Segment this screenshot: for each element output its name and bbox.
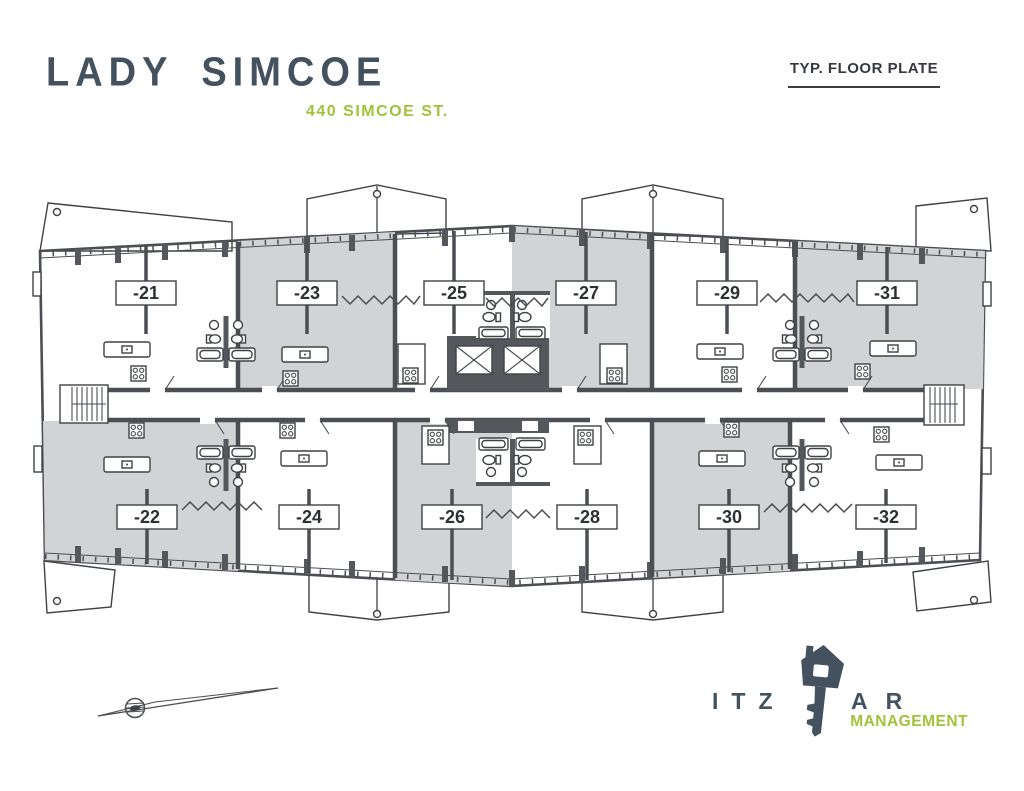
page: { "header": { "title": "LADY SIMCOE", "a… [0, 0, 1024, 791]
unit-fill-23 [238, 232, 395, 389]
north-arrow-icon [98, 688, 278, 718]
logo-wordmark-left: ITZ [712, 688, 786, 715]
stove-icon [403, 368, 418, 383]
svg-text:-22: -22 [134, 507, 160, 527]
unit-fill-30 [652, 421, 790, 578]
stove-icon [724, 422, 739, 437]
stove-icon [607, 368, 622, 383]
elevator-x-icon [456, 346, 492, 374]
svg-text:-31: -31 [874, 283, 900, 303]
stove-icon [131, 366, 146, 381]
unit-label-22: -22 [117, 505, 177, 529]
svg-text:-32: -32 [873, 507, 899, 527]
unit-label-27: -27 [556, 281, 616, 305]
unit-label-21: -21 [116, 281, 176, 305]
stove-icon [283, 371, 298, 386]
logo-wordmark-right: AR [851, 688, 920, 715]
unit-label-24: -24 [279, 505, 339, 529]
balcony-bottom-left [44, 561, 115, 613]
unit-label-29: -29 [697, 281, 757, 305]
svg-text:-28: -28 [574, 507, 600, 527]
stairwell-left [60, 385, 108, 423]
stove-icon [874, 427, 889, 442]
svg-text:-26: -26 [439, 507, 465, 527]
svg-text:-24: -24 [296, 507, 322, 527]
elevator-x-icon [504, 346, 540, 374]
floor-plan-drawing: -21 -23 -25 -27 -29 -31 -22 -24 -26 -28 … [0, 0, 1024, 791]
svg-text:-30: -30 [716, 507, 742, 527]
unit-fill-31 [795, 241, 985, 389]
stove-icon [280, 423, 295, 438]
unit-label-26: -26 [422, 505, 482, 529]
stairwell-right [924, 385, 964, 425]
balcony-top-right [916, 198, 991, 251]
stove-icon [129, 423, 144, 438]
svg-text:-23: -23 [294, 283, 320, 303]
stove-icon [855, 364, 870, 379]
stove-icon [428, 430, 443, 445]
stove-icon [722, 367, 737, 382]
logo-subtitle: MANAGEMENT [838, 713, 968, 731]
unit-label-31: -31 [857, 281, 917, 305]
unit-label-30: -30 [699, 505, 759, 529]
stove-icon [578, 430, 593, 445]
unit-label-28: -28 [557, 505, 617, 529]
unit-label-32: -32 [856, 505, 916, 529]
svg-text:-29: -29 [714, 283, 740, 303]
unit-label-25: -25 [424, 281, 484, 305]
unit-label-23: -23 [277, 281, 337, 305]
svg-text:-25: -25 [441, 283, 467, 303]
balcony-bottom-right [913, 561, 991, 611]
corridor [60, 390, 962, 420]
unit-fill-22 [43, 421, 238, 571]
svg-text:-27: -27 [573, 283, 599, 303]
svg-text:-21: -21 [133, 283, 159, 303]
bathrooms-core-bottom [476, 438, 550, 486]
